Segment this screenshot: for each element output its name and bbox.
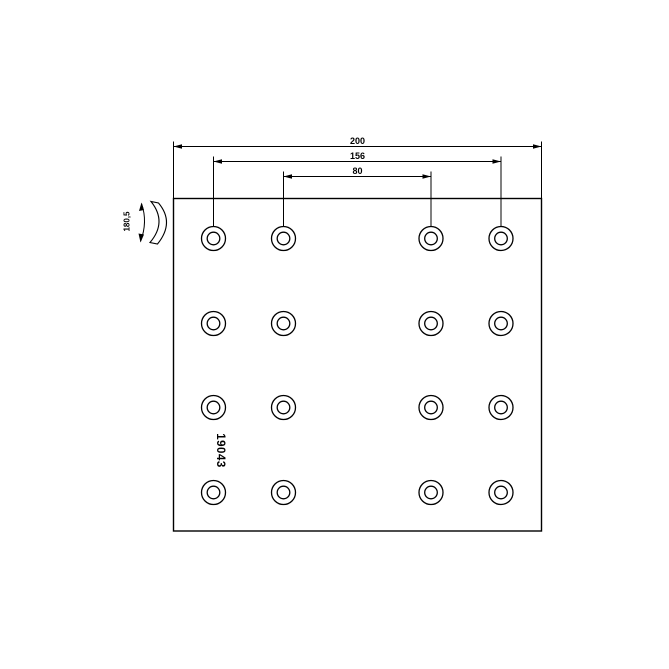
dimension-label-outer-hole-spacing: 156: [350, 151, 365, 161]
rivet-hole: [272, 312, 296, 336]
arrowhead-left-icon: [284, 174, 293, 178]
dimension-inner-hole-spacing: 80: [284, 166, 432, 179]
arrowhead-left-icon: [174, 144, 183, 148]
curvature-symbol: 180,5: [123, 202, 167, 245]
rivet-hole: [419, 312, 443, 336]
dimension-label-overall-width: 200: [350, 136, 365, 146]
rivet-hole: [202, 396, 226, 420]
dimension-outer-hole-spacing: 156: [214, 151, 502, 164]
arc-arrowhead-top-icon: [139, 203, 144, 212]
technical-drawing-page: 200 156 80 180,5 19043: [0, 0, 669, 669]
arrowhead-right-icon: [493, 159, 502, 163]
dimension-label-arc-width: 180,5: [123, 211, 132, 232]
dimension-label-inner-hole-spacing: 80: [352, 166, 362, 176]
rivet-hole: [489, 481, 513, 505]
arrowhead-right-icon: [533, 144, 542, 148]
arrowhead-right-icon: [423, 174, 432, 178]
rivet-hole: [419, 396, 443, 420]
rivet-hole: [202, 481, 226, 505]
dimension-overall-width: 200: [174, 136, 542, 149]
lining-cross-section-icon: [150, 202, 167, 245]
rivet-hole: [489, 312, 513, 336]
rivet-hole: [419, 227, 443, 251]
rivet-hole: [419, 481, 443, 505]
rivet-hole: [202, 312, 226, 336]
rivet-hole: [272, 396, 296, 420]
rivet-hole: [202, 227, 226, 251]
brake-lining-drawing-canvas: 200 156 80 180,5 19043: [0, 0, 669, 669]
rivet-hole: [272, 481, 296, 505]
part-number-label: 19043: [214, 433, 226, 467]
rivet-hole: [489, 227, 513, 251]
rivet-hole: [272, 227, 296, 251]
arc-arrowhead-bottom-icon: [139, 234, 145, 243]
lining-plate-outline: [174, 199, 542, 532]
rivet-hole: [489, 396, 513, 420]
arrowhead-left-icon: [214, 159, 223, 163]
